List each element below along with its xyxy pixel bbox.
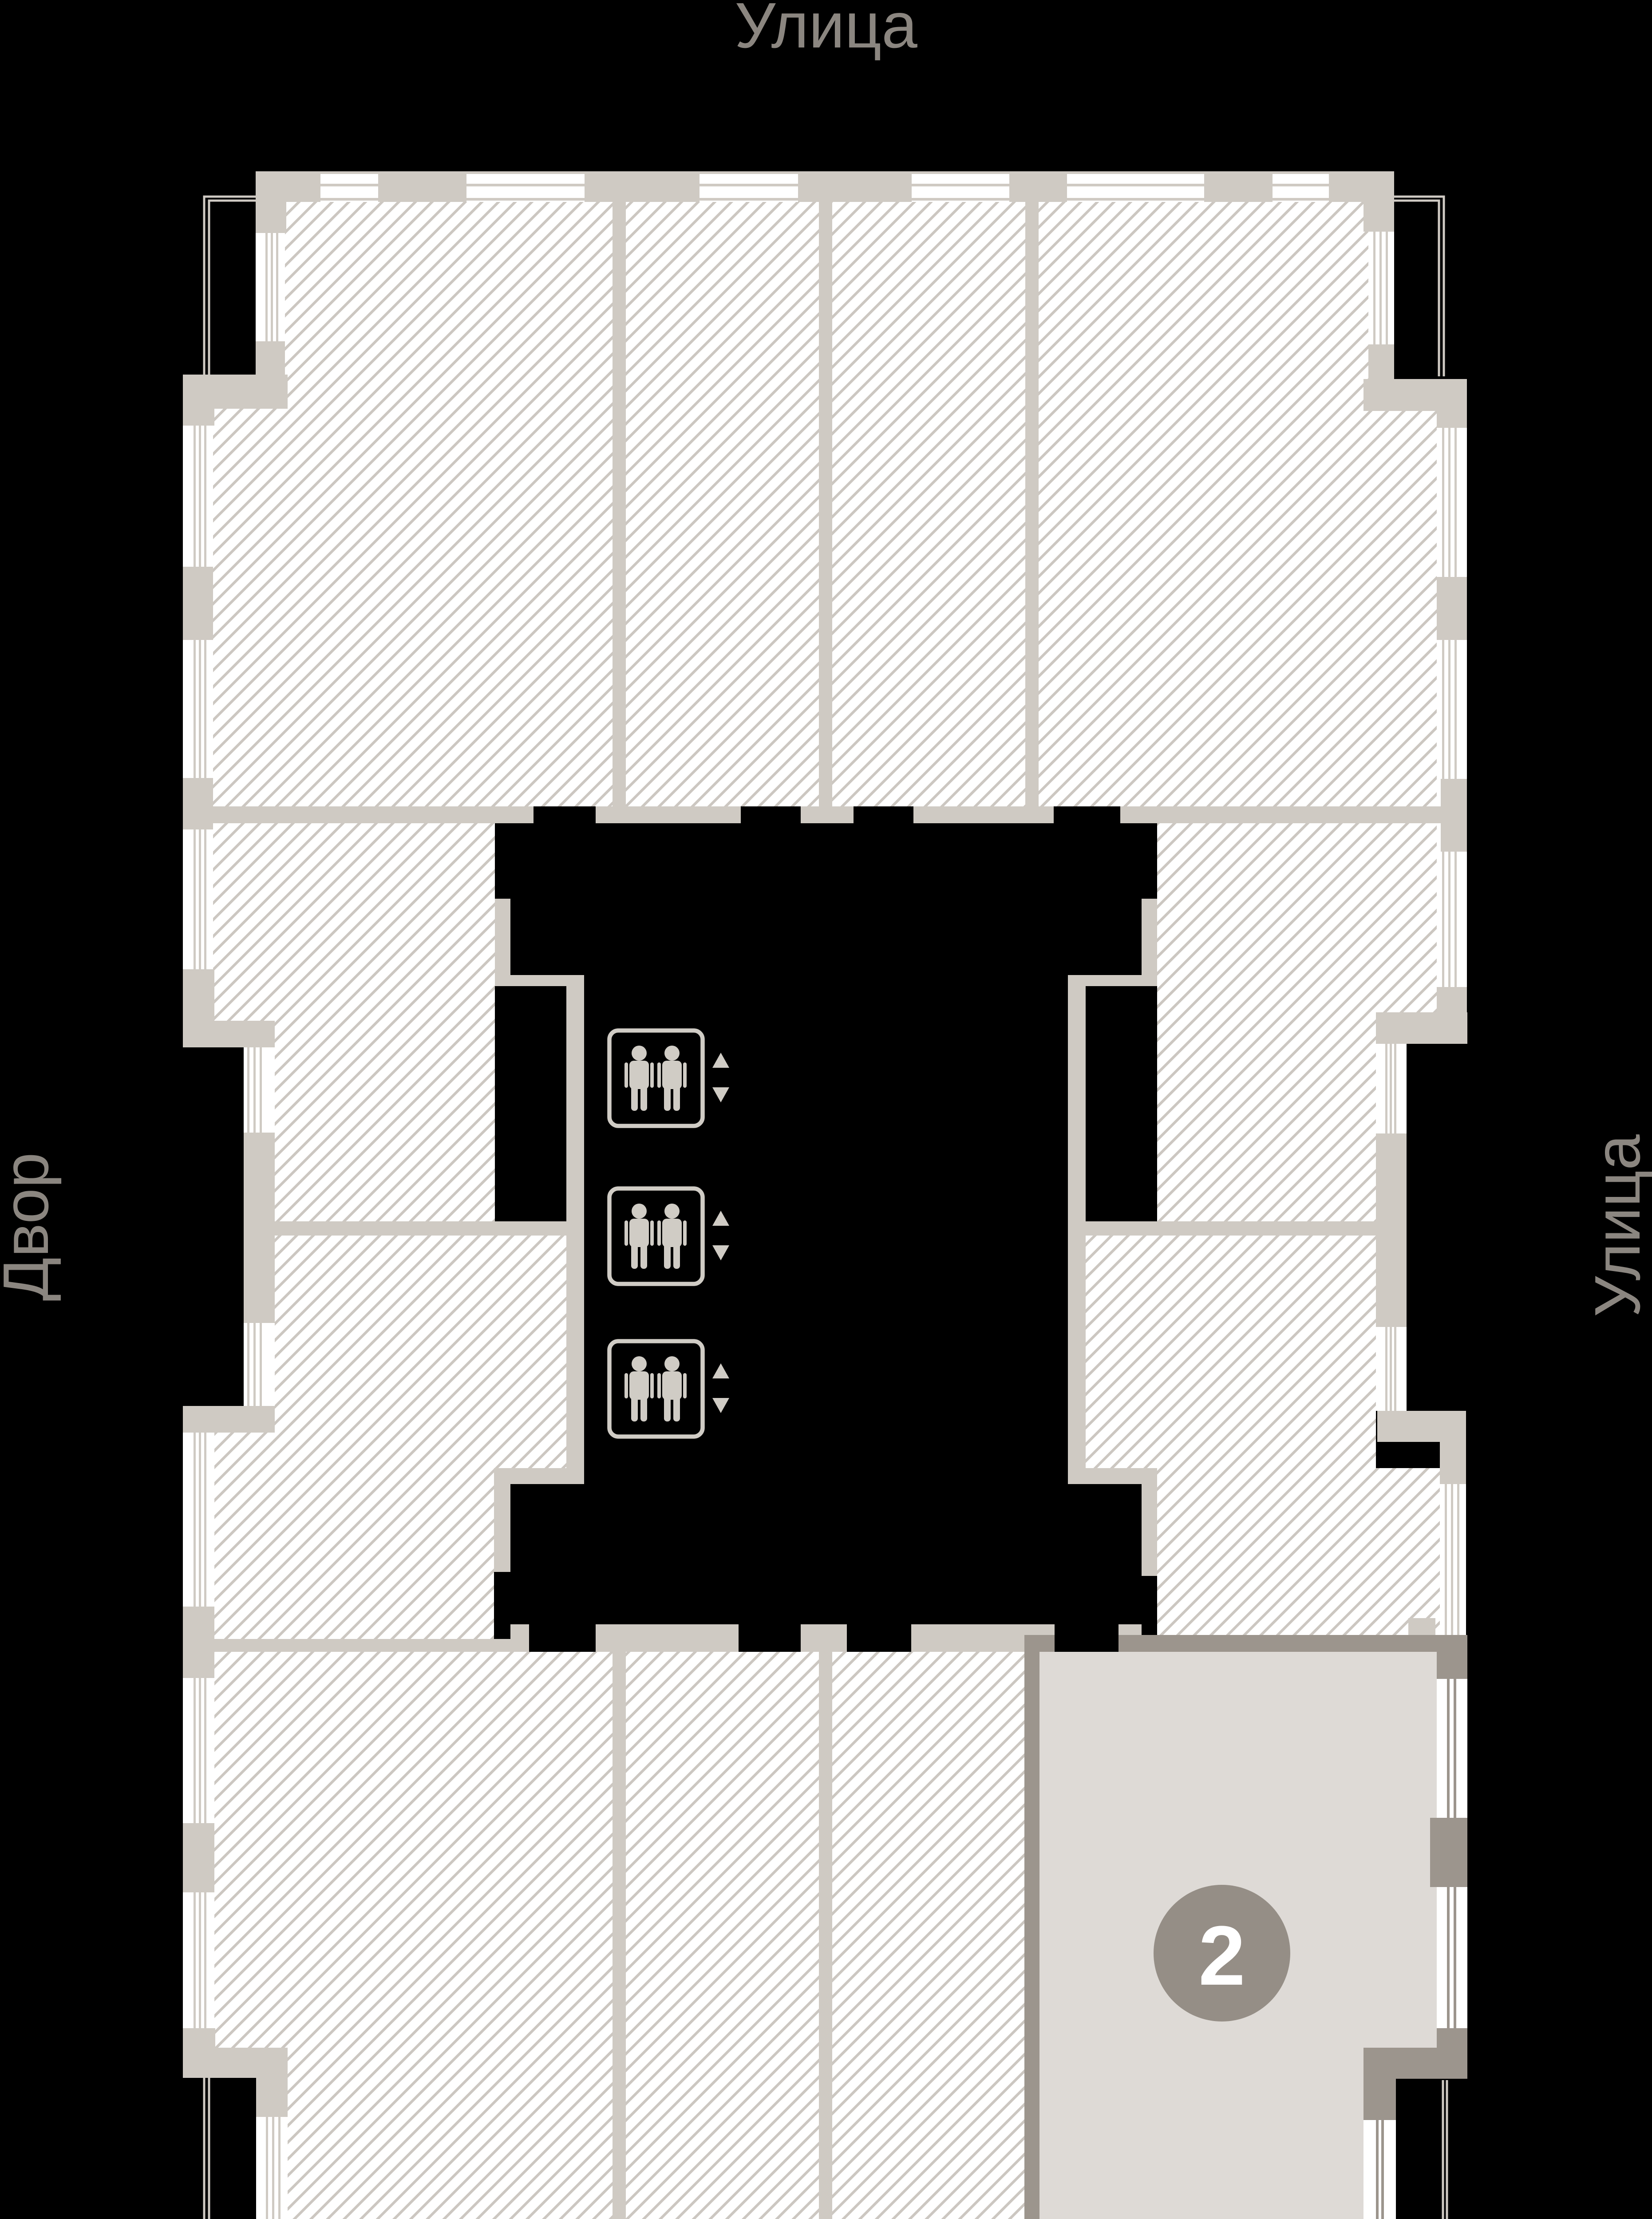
svg-text:Улица: Улица	[1581, 1134, 1652, 1317]
svg-text:Двор: Двор	[0, 1153, 62, 1301]
svg-text:Улица: Улица	[735, 0, 917, 61]
svg-text:2: 2	[1198, 1909, 1245, 2003]
